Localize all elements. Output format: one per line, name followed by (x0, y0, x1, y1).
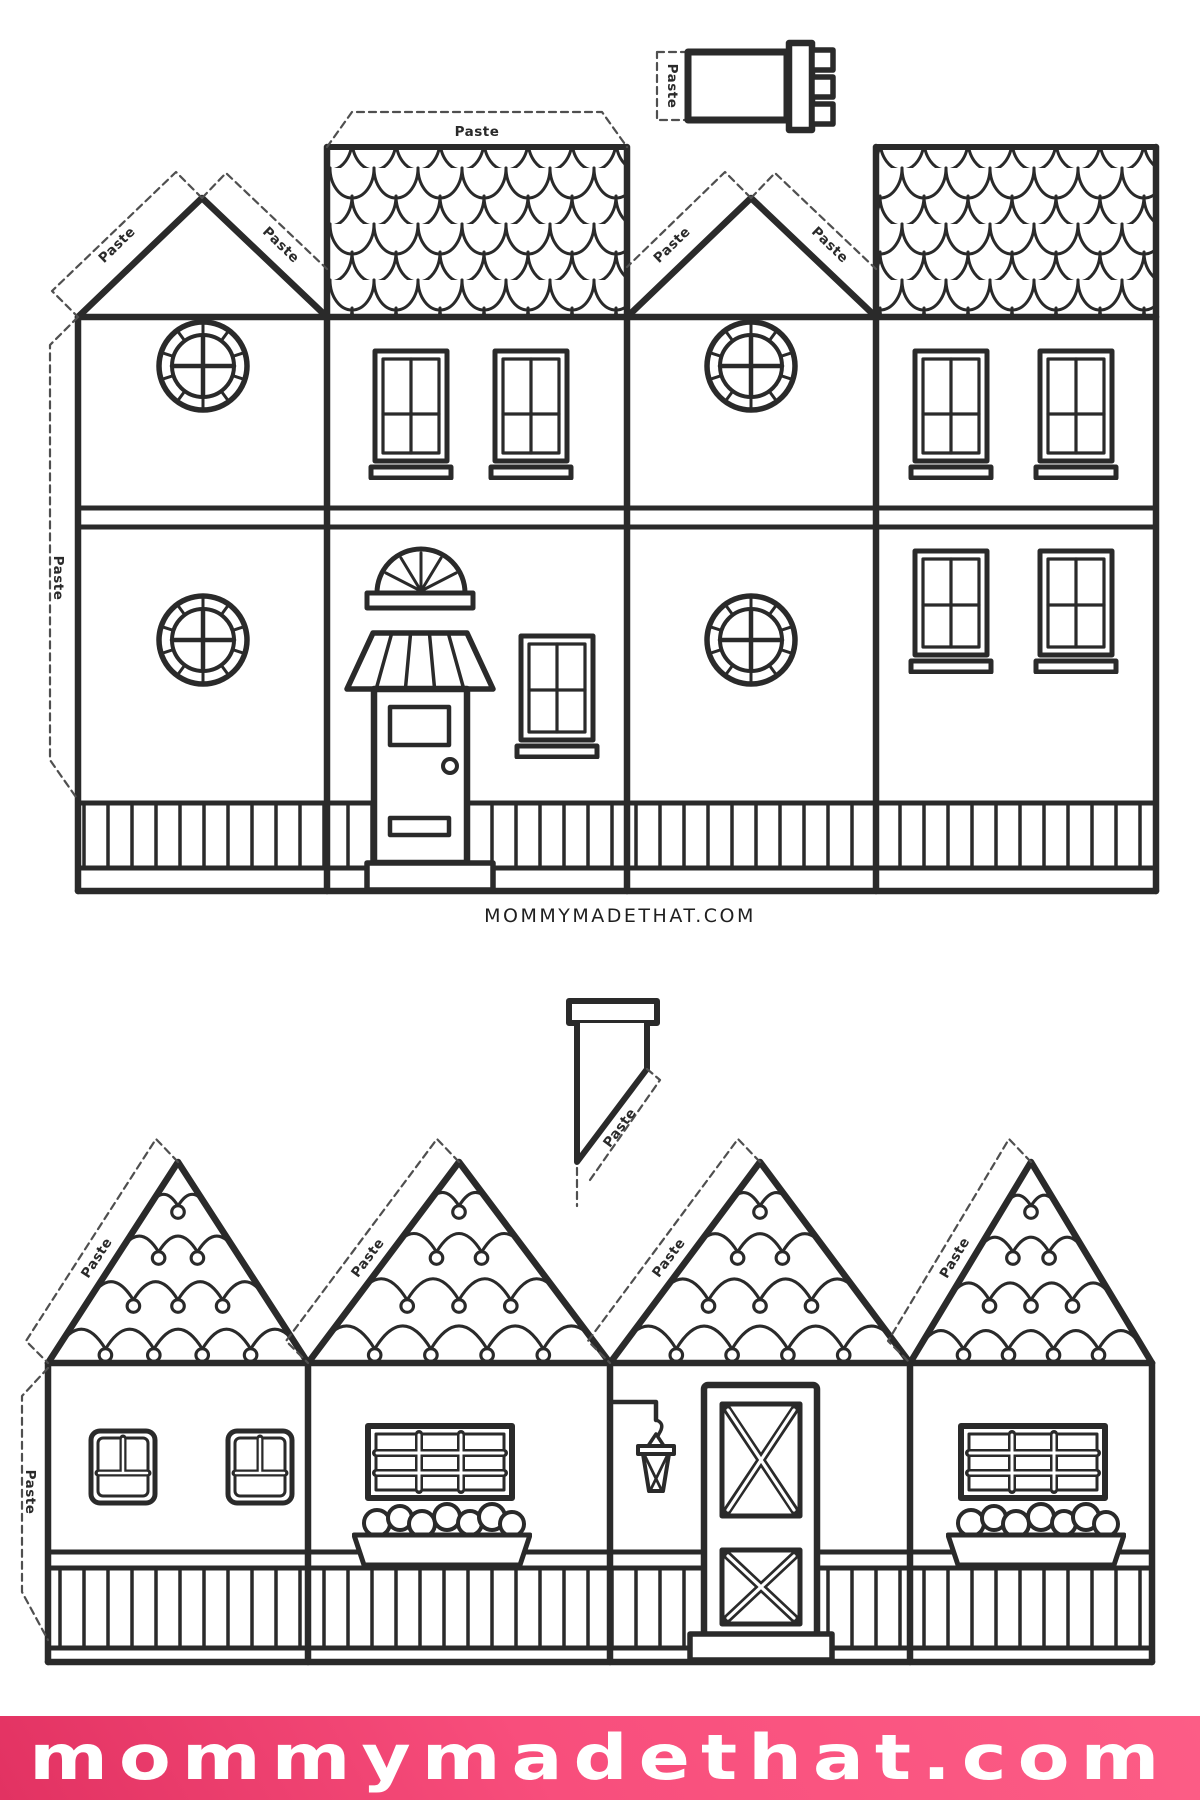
lower-window (1036, 551, 1116, 672)
barn-door (690, 1385, 832, 1660)
printable-sheet: Paste (0, 0, 1200, 1800)
paste-label: Paste (50, 556, 66, 601)
chimney-piece-2: Paste (569, 1001, 660, 1206)
grid-window (368, 1426, 512, 1498)
paste-label: Paste (649, 1235, 689, 1280)
cottage-window (228, 1431, 292, 1503)
paste-label: Paste (22, 1470, 38, 1515)
door-awning (347, 633, 493, 689)
footer-banner: mommymadethat.com (0, 1716, 1200, 1800)
string-light-garlands (57, 1192, 1143, 1361)
cottage-window (91, 1431, 155, 1503)
tall-window (911, 351, 991, 478)
tall-window (1036, 351, 1116, 478)
paste-label: Paste (348, 1235, 388, 1280)
door-step (367, 863, 493, 890)
tall-window (491, 351, 571, 478)
door-knob (443, 759, 457, 773)
paste-label: Paste (96, 224, 139, 267)
fence-stripes (48, 1568, 1152, 1648)
porch-lantern (610, 1402, 674, 1491)
base-siding-stripes (78, 803, 1156, 868)
chimney-piece: Paste (657, 43, 833, 130)
paste-label: Paste (937, 1235, 974, 1282)
lower-window (911, 551, 991, 672)
paste-label: Paste (455, 124, 500, 140)
lower-window (517, 636, 597, 757)
scalloped-roof-right (876, 147, 1156, 317)
flower-box (354, 1504, 530, 1565)
door-step (690, 1634, 832, 1660)
grid-window (961, 1426, 1105, 1498)
house-row-template-1: Paste (50, 43, 1156, 927)
porthole-window (707, 322, 795, 410)
porthole-window (707, 596, 795, 684)
site-caption: MOMMYMADETHAT.COM (484, 905, 756, 927)
site-url-text: mommymadethat.com (29, 1716, 1170, 1800)
house-row-template-2: Paste (22, 1001, 1152, 1662)
template-sheet-svg: Paste (0, 0, 1200, 1716)
porthole-window (159, 596, 247, 684)
flower-box (948, 1504, 1124, 1565)
scalloped-roof-left (327, 147, 627, 317)
tall-window (371, 351, 451, 478)
porthole-window (159, 322, 247, 410)
paste-label: Paste (664, 64, 680, 109)
paste-label: Paste (78, 1235, 116, 1281)
